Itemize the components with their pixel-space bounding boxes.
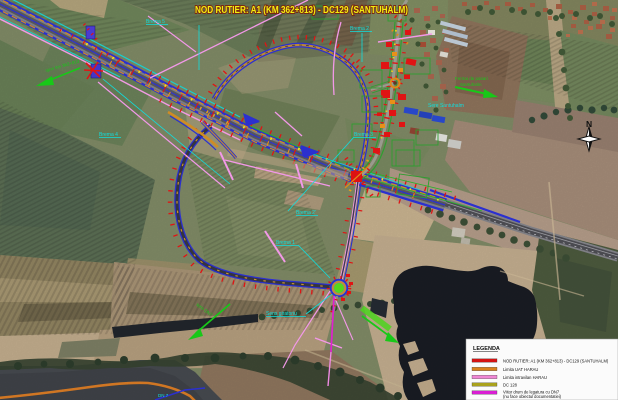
svg-text:Sere Santuhalm: Sere Santuhalm bbox=[428, 103, 464, 109]
svg-text:DC 128: DC 128 bbox=[503, 383, 518, 388]
svg-text:Ferma de pasari: Ferma de pasari bbox=[455, 76, 488, 81]
svg-text:N: N bbox=[586, 119, 592, 129]
svg-text:LEGENDA: LEGENDA bbox=[473, 346, 500, 352]
svg-text:Limita UAT HARAU: Limita UAT HARAU bbox=[503, 367, 538, 372]
svg-text:(nu face obiectul documentatie: (nu face obiectul documentatiei) bbox=[503, 394, 562, 399]
svg-text:Limita intravilan HARAU: Limita intravilan HARAU bbox=[503, 375, 547, 380]
svg-text:Santuhalm: Santuhalm bbox=[460, 82, 482, 87]
svg-text:NOD RUTIER: A1 (KM 362+813) -: NOD RUTIER: A1 (KM 362+813) - DC129 (SAN… bbox=[195, 4, 408, 16]
svg-text:NOD RUTIER: A1 (KM 362+813) -: NOD RUTIER: A1 (KM 362+813) - DC129 (SAN… bbox=[503, 359, 609, 364]
svg-text:DN 7: DN 7 bbox=[158, 393, 169, 398]
